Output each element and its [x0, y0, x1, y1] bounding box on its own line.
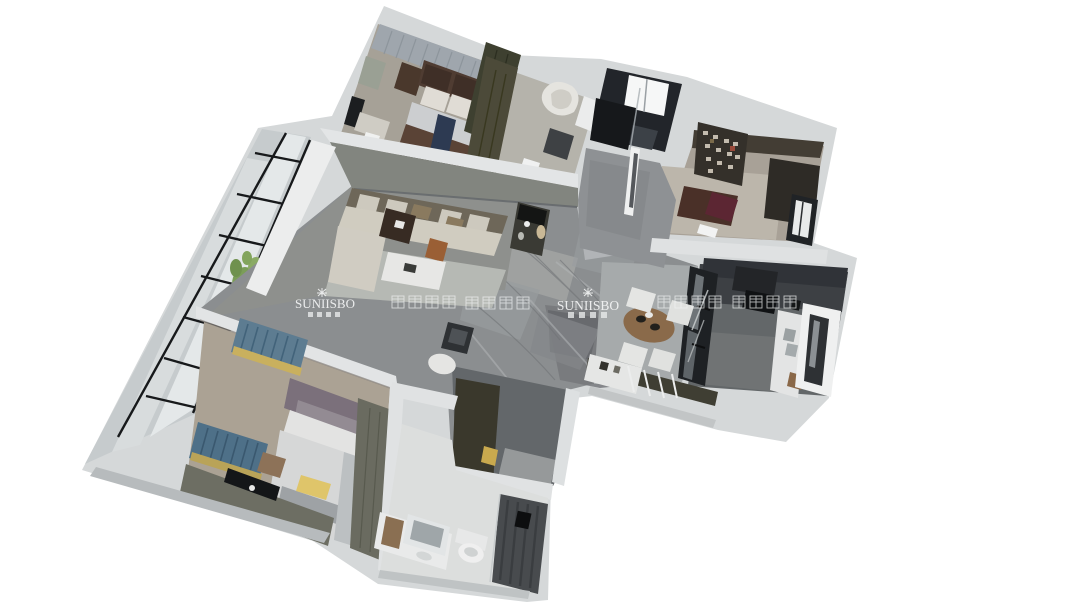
svg-text:SUNIISBO: SUNIISBO: [557, 298, 620, 313]
svg-text:SUNIISBO: SUNIISBO: [295, 296, 355, 311]
